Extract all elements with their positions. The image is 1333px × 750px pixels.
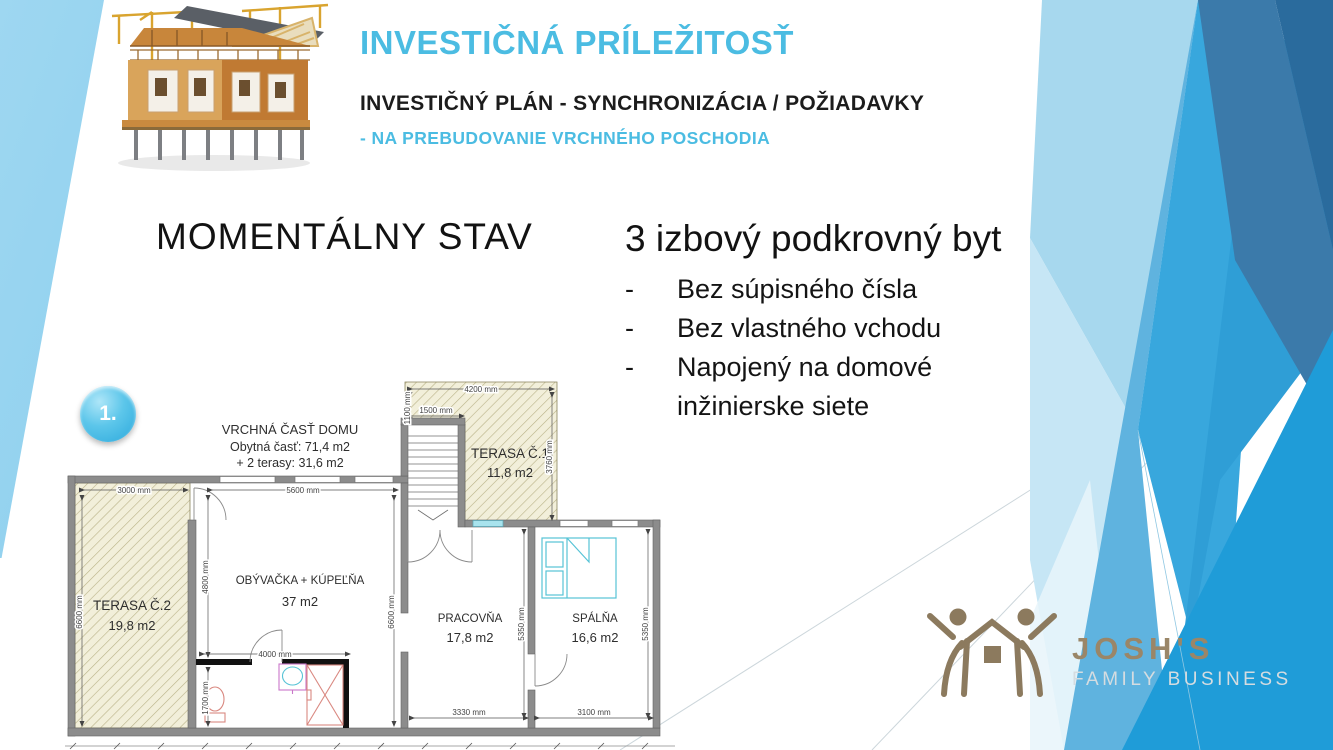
list-item: - Napojený na domové inžinierske siete bbox=[625, 348, 1100, 426]
skylight-window bbox=[473, 521, 503, 527]
dimension-label: 5600 mm bbox=[286, 486, 320, 495]
dimension-label: 5350 mm bbox=[641, 607, 650, 641]
dimension-label: 3760 mm bbox=[545, 440, 554, 474]
dimension-label: 1500 mm bbox=[419, 406, 453, 415]
floorplan-header: VRCHNÁ ČASŤ DOMU Obytná časť: 71,4 m2 + … bbox=[222, 422, 359, 470]
dimension-label: 3330 mm bbox=[452, 708, 486, 717]
floorplan-drawing: VRCHNÁ ČASŤ DOMU Obytná časť: 71,4 m2 + … bbox=[60, 372, 680, 750]
room-label: PRACOVŇA bbox=[438, 612, 503, 625]
company-logo: JOSH'S FAMILY BUSINESS bbox=[922, 604, 1292, 700]
window-openings bbox=[220, 477, 638, 527]
staircase bbox=[408, 436, 458, 520]
section-heading: MOMENTÁLNY STAV bbox=[156, 216, 533, 258]
room-area-label: 11,8 m2 bbox=[487, 465, 533, 480]
svg-text:Obytná časť: 71,4 m2: Obytná časť: 71,4 m2 bbox=[230, 440, 350, 454]
bed-fixture bbox=[542, 538, 616, 598]
dimension-label: 4200 mm bbox=[464, 385, 498, 394]
dimension-label: 3000 mm bbox=[117, 486, 151, 495]
svg-text:+ 2 terasy: 31,6 m2: + 2 terasy: 31,6 m2 bbox=[236, 456, 343, 470]
dimension-label: 4800 mm bbox=[201, 560, 210, 594]
room-area-label: 37 m2 bbox=[282, 594, 318, 609]
header: INVESTIČNÁ PRÍLEŽITOSŤ INVESTIČNÝ PLÁN -… bbox=[360, 24, 924, 149]
room-area-label: 16,6 m2 bbox=[572, 630, 619, 645]
room-area-label: 17,8 m2 bbox=[447, 630, 494, 645]
sink-fixture bbox=[279, 664, 306, 694]
dimension-label: 1700 mm bbox=[201, 681, 210, 715]
bottom-dimension-row bbox=[65, 743, 675, 749]
list-item: - Bez súpisného čísla bbox=[625, 270, 1100, 309]
room-label: OBÝVAČKA + KÚPEĽŇA bbox=[236, 574, 365, 587]
dimension-label: 5350 mm bbox=[517, 607, 526, 641]
logo-tagline: FAMILY BUSINESS bbox=[1072, 669, 1292, 691]
dimension-label: 3100 mm bbox=[577, 708, 611, 717]
apartment-heading: 3 izbový podkrovný byt bbox=[625, 218, 1100, 260]
room-label: SPÁLŇA bbox=[572, 612, 618, 625]
bullet-dash: - bbox=[625, 309, 677, 348]
dimension-label: 1100 mm bbox=[403, 391, 412, 424]
room-label: TERASA Č.1 bbox=[471, 446, 549, 461]
room-area-label: 19,8 m2 bbox=[109, 618, 156, 633]
house-construction-image bbox=[92, 2, 334, 174]
svg-text:VRCHNÁ ČASŤ DOMU: VRCHNÁ ČASŤ DOMU bbox=[222, 422, 359, 437]
list-item: - Bez vlastného vchodu bbox=[625, 309, 1100, 348]
logo-name: JOSH'S bbox=[1072, 632, 1292, 666]
bullet-dash: - bbox=[625, 270, 677, 309]
apartment-description: 3 izbový podkrovný byt - Bez súpisného č… bbox=[625, 218, 1100, 426]
page-subtitle-2: - NA PREBUDOVANIE VRCHNÉHO POSCHODIA bbox=[360, 128, 924, 149]
dimension-label: 4000 mm bbox=[258, 650, 292, 659]
slide-number-badge: 1. bbox=[80, 386, 136, 442]
page-subtitle: INVESTIČNÝ PLÁN - SYNCHRONIZÁCIA / POŽIA… bbox=[360, 92, 924, 116]
family-house-icon bbox=[922, 604, 1062, 700]
apartment-bullet-list: - Bez súpisného čísla - Bez vlastného vc… bbox=[625, 270, 1100, 426]
shower-fixture bbox=[307, 665, 343, 725]
room-label: TERASA Č.2 bbox=[93, 598, 171, 613]
dimension-label: 6600 mm bbox=[387, 595, 396, 629]
page-title: INVESTIČNÁ PRÍLEŽITOSŤ bbox=[360, 24, 924, 62]
presentation-slide: INVESTIČNÁ PRÍLEŽITOSŤ INVESTIČNÝ PLÁN -… bbox=[0, 0, 1333, 750]
dimension-label: 6600 mm bbox=[75, 595, 84, 629]
